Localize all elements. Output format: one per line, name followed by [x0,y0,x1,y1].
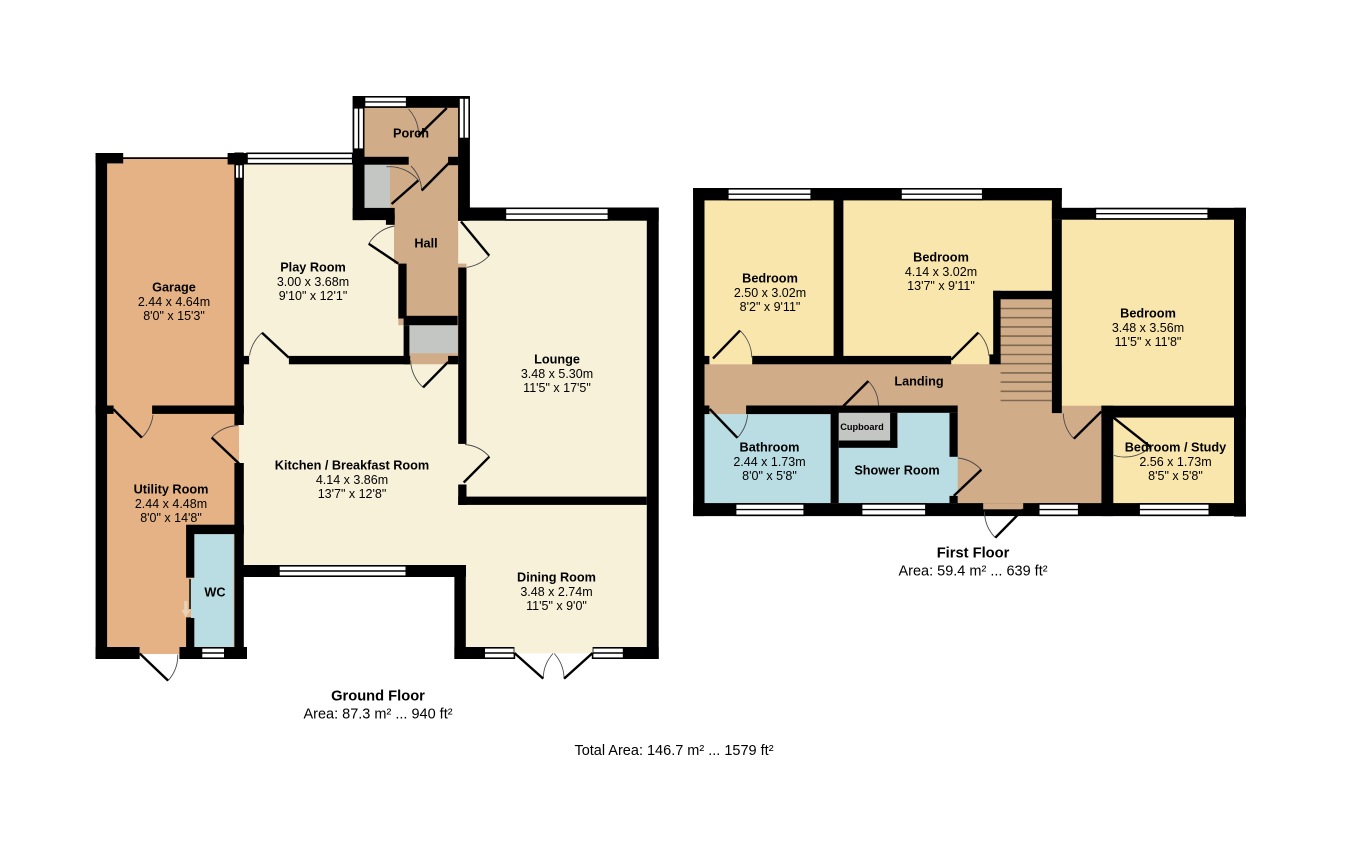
svg-text:8'0" x 14'8": 8'0" x 14'8" [140,511,202,525]
svg-text:8'0" x 5'8": 8'0" x 5'8" [742,469,797,483]
svg-text:Hall: Hall [414,237,437,251]
svg-text:First Floor: First Floor [937,546,1010,562]
svg-text:8'2" x 9'11": 8'2" x 9'11" [740,300,801,314]
svg-text:2.44 x 4.48m: 2.44 x 4.48m [135,497,207,511]
svg-text:2.44 x 4.64m: 2.44 x 4.64m [138,295,210,309]
svg-text:Area: 87.3 m² ... 940 ft²: Area: 87.3 m² ... 940 ft² [303,707,452,723]
svg-text:11'5" x 9'0": 11'5" x 9'0" [526,599,587,613]
svg-text:Bedroom / Study: Bedroom / Study [1125,441,1227,455]
svg-text:3.48 x 3.56m: 3.48 x 3.56m [1112,321,1184,335]
svg-text:Shower Room: Shower Room [854,464,939,478]
svg-text:Total Area: 146.7 m² ... 1579: Total Area: 146.7 m² ... 1579 ft² [574,743,773,759]
svg-text:Kitchen / Breakfast Room: Kitchen / Breakfast Room [275,459,429,473]
svg-text:9'10" x 12'1": 9'10" x 12'1" [279,289,348,303]
svg-text:Landing: Landing [894,375,943,389]
svg-text:3.00 x 3.68m: 3.00 x 3.68m [277,275,349,289]
svg-text:3.48 x 5.30m: 3.48 x 5.30m [521,367,593,381]
svg-text:Lounge: Lounge [534,353,580,367]
svg-text:13'7" x 9'11": 13'7" x 9'11" [907,279,975,293]
svg-text:Porch: Porch [393,127,429,141]
svg-text:Area: 59.4 m² ... 639 ft²: Area: 59.4 m² ... 639 ft² [898,564,1047,580]
svg-text:Cupboard: Cupboard [840,422,883,432]
svg-text:11'5" x 11'8": 11'5" x 11'8" [1115,335,1182,349]
svg-text:8'0" x 15'3": 8'0" x 15'3" [143,309,205,323]
svg-text:4.14 x 3.02m: 4.14 x 3.02m [905,265,977,279]
svg-text:Ground Floor: Ground Floor [331,689,425,705]
svg-text:2.50 x 3.02m: 2.50 x 3.02m [734,286,806,300]
svg-text:Dining Room: Dining Room [517,571,596,585]
svg-text:Utility Room: Utility Room [134,483,209,497]
svg-text:2.44 x 1.73m: 2.44 x 1.73m [733,455,805,469]
svg-text:Bedroom: Bedroom [1120,307,1176,321]
svg-text:3.48 x 2.74m: 3.48 x 2.74m [520,585,592,599]
svg-text:13'7" x 12'8": 13'7" x 12'8" [318,487,387,501]
svg-text:4.14 x 3.86m: 4.14 x 3.86m [316,473,388,487]
svg-text:8'5" x 5'8": 8'5" x 5'8" [1148,469,1203,483]
svg-text:11'5" x 17'5": 11'5" x 17'5" [523,381,591,395]
svg-text:Bathroom: Bathroom [740,441,800,455]
svg-text:Play Room: Play Room [280,261,346,275]
svg-text:2.56 x 1.73m: 2.56 x 1.73m [1139,455,1211,469]
svg-text:Bedroom: Bedroom [913,251,969,265]
svg-text:WC: WC [204,586,225,600]
svg-text:Bedroom: Bedroom [742,272,798,286]
svg-text:Garage: Garage [152,281,196,295]
